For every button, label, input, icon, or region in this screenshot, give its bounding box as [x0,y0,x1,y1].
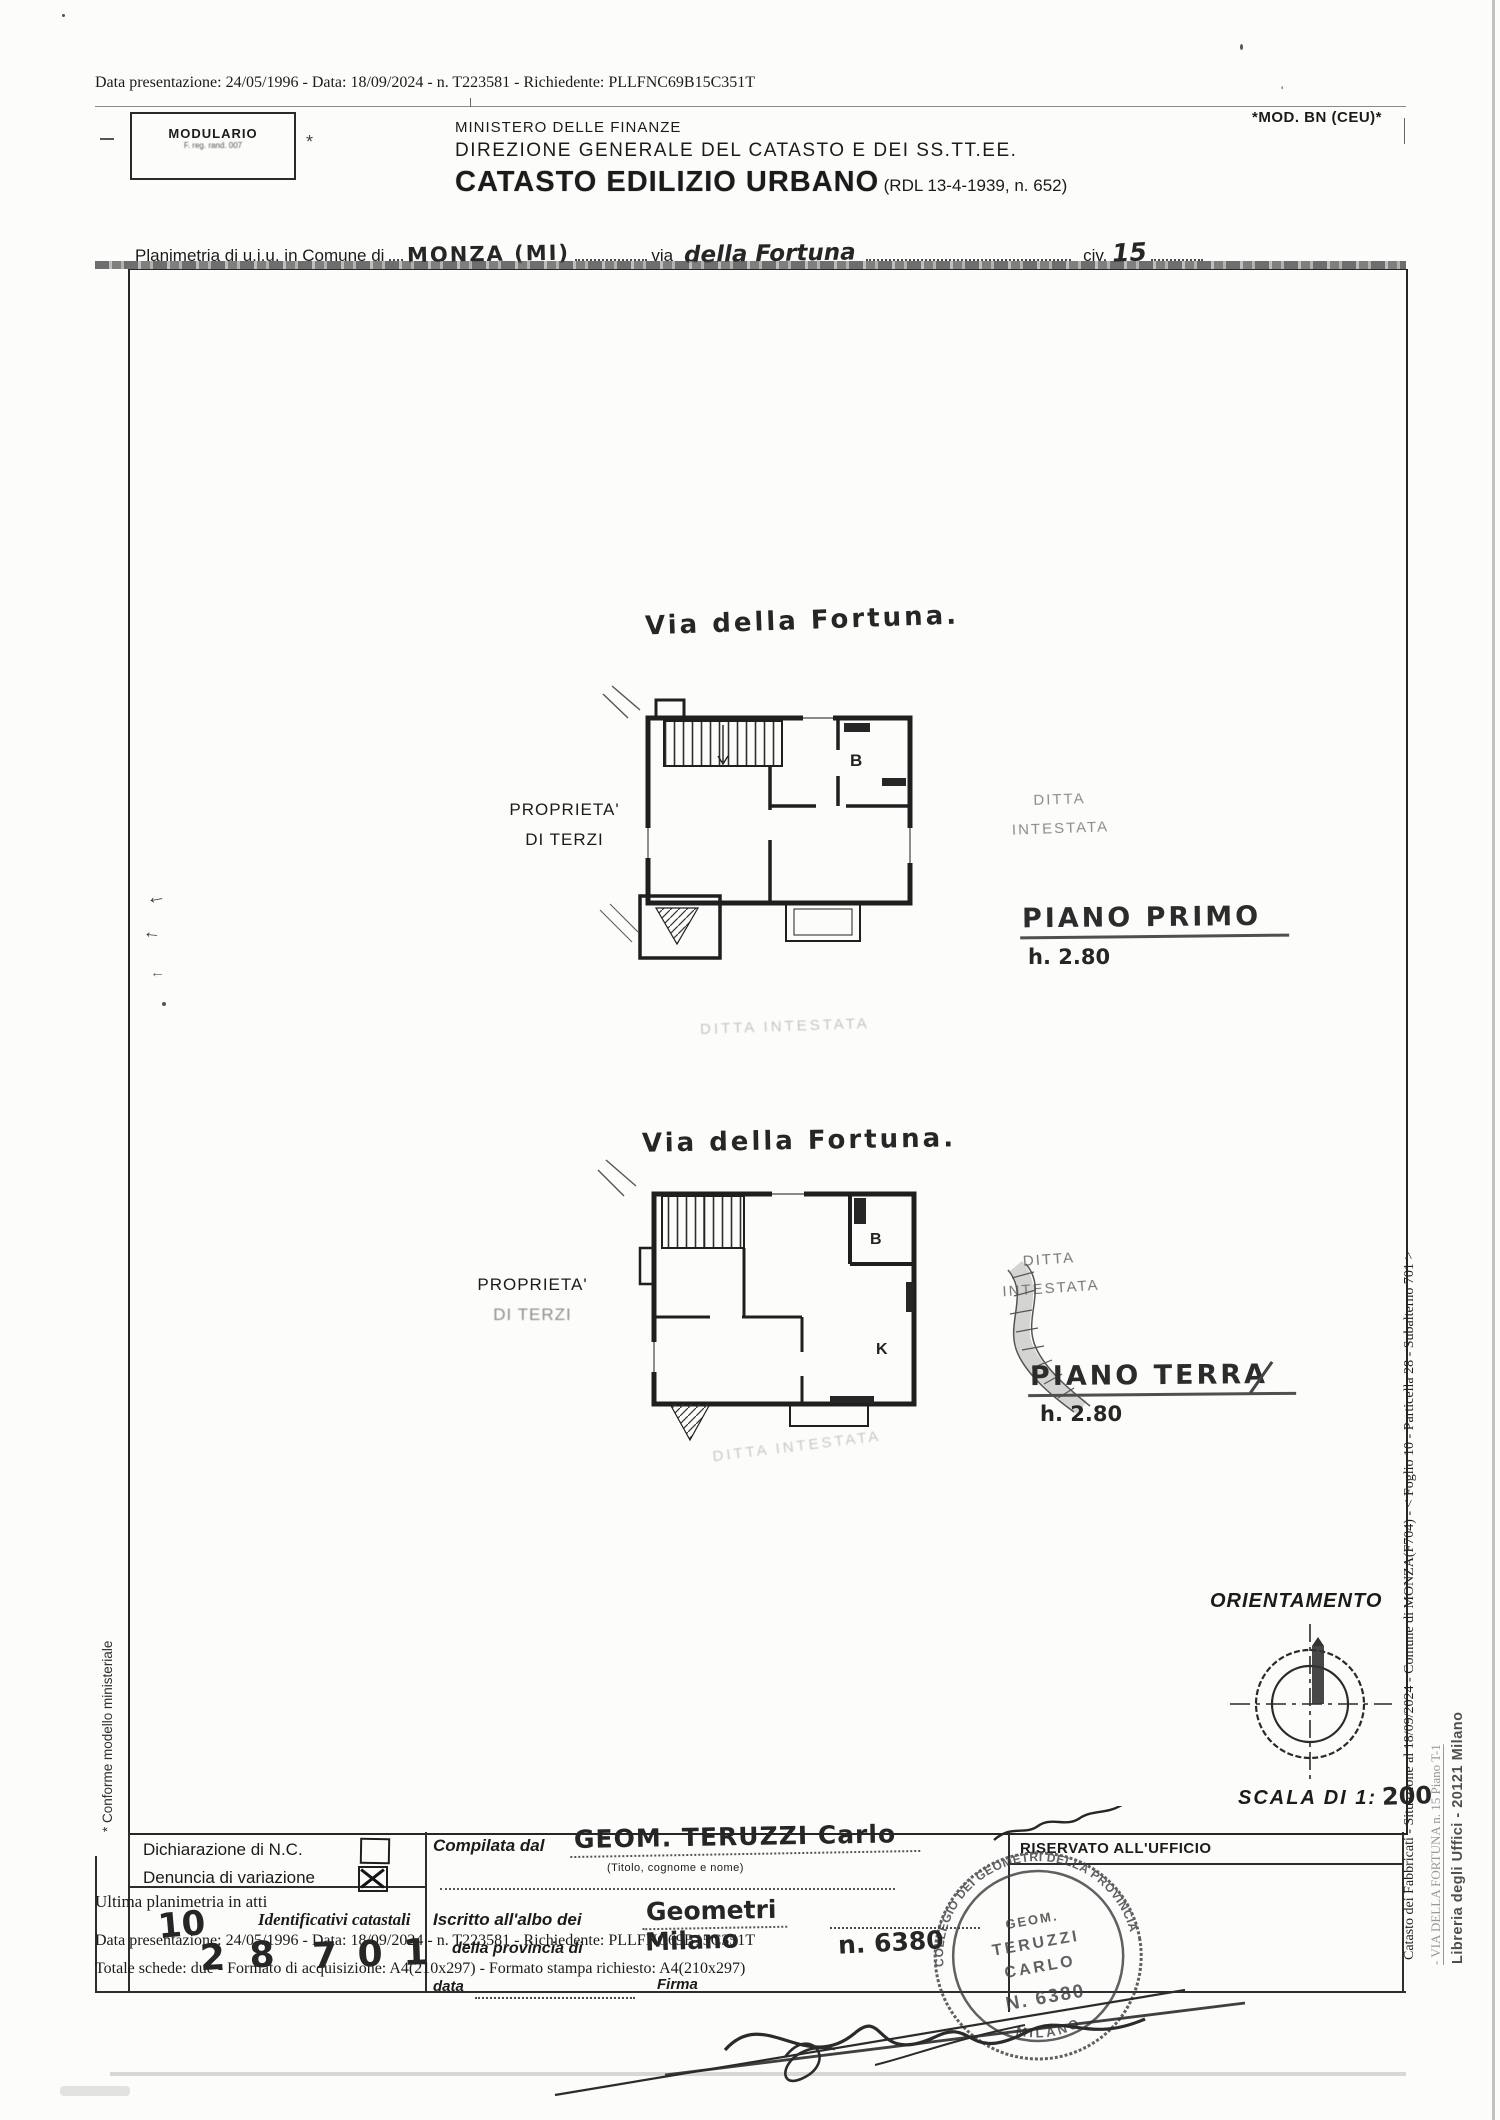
scale-label: SCALA DI 1: [1238,1787,1377,1809]
dot-leader [575,244,647,261]
room-label-bath: B [850,751,862,770]
scanned-cadastral-document: Data presentazione: 24/05/1996 - Data: 1… [0,0,1500,2120]
asterisk-mark: * [306,132,313,153]
margin-arrow-icon: ← [142,921,162,944]
compass-icon [1226,1620,1396,1788]
modulario-title: MODULARIO [132,126,294,141]
document-title: CATASTO EDILIZIO URBANO [455,166,879,198]
header-rule [95,106,1406,107]
scan-speck [1240,44,1243,50]
floor-plan-first: B [598,678,933,993]
room-label-kitchen: K [876,1341,888,1358]
tenant-label-first: DITTA INTESTATA [994,784,1126,846]
data-label: data [433,1978,464,1995]
tenant-line1: DITTA [994,784,1125,817]
pen-scribble [988,1806,1158,1851]
handwritten-particella: 2 8 [199,1934,282,1979]
dot-leader [866,244,1071,261]
signature-scribble [545,1945,1305,2110]
declaration-nc-label: Dichiarazione di N.C. [143,1840,303,1860]
owner-left-label-ground: PROPRIETA' DI TERZI [450,1270,615,1330]
form-right-border [1402,1832,1404,1991]
left-margin-note: * Conforme modello ministeriale [100,1484,120,1832]
floor-name-first: PIANO PRIMO [1020,901,1290,940]
handwritten-subalterno: 7 0 1 [311,1932,433,1977]
entrance-hatch [656,908,698,944]
floor-height-ground: h. 2.80 [1040,1402,1122,1426]
floor-name-ground-wrap: PIANO TERRA [1028,1359,1296,1397]
floor-name-first-wrap: PIANO PRIMO [1020,901,1290,940]
north-needle [1312,1646,1324,1704]
compilata-label: Compilata dal [433,1836,544,1856]
margin-arrow-icon: ← [144,884,168,910]
right-margin-libreria-line: Libreria degli Uffici - 20121 Milano [1450,1552,1472,1964]
orientation-label: ORIENTAMENTO [1210,1590,1382,1613]
right-margin-address-line: - VIA DELLA FORTUNA n. 15 Piano T-1 [1428,1590,1448,1965]
identificativi-label: Identificativi catastali [258,1910,411,1930]
scan-presentation-line: Data presentazione: 24/05/1996 - Data: 1… [95,74,755,92]
scan-speck: ' [1281,84,1283,98]
scan-speck [162,1002,166,1006]
owner-left-label-first: PROPRIETA' DI TERZI [482,795,647,855]
stamp-center-1: GEOM. [1004,1908,1059,1932]
scan-speck [62,14,65,17]
staircase-hatch [662,1196,744,1248]
declaration-variation-label: Denuncia di variazione [143,1868,315,1888]
compilata-handwritten: GEOM. TERUZZI Carlo [570,1819,921,1858]
titolo-note: (Titolo, cognome e nome) [607,1862,744,1874]
owner-left-line2: DI TERZI [482,825,647,855]
document-title-row: CATASTO EDILIZIO URBANO (RDL 13-4-1939, … [455,166,1067,199]
tenant-line2: INTESTATA [995,812,1126,845]
floor-name-ground: PIANO TERRA [1028,1359,1296,1397]
iscritto-label: Iscritto all'albo dei [433,1910,582,1930]
header-tick [470,98,471,107]
dotted-rule [440,1888,895,1890]
owner-left-line1: PROPRIETA' [450,1270,615,1300]
owner-left-line1: PROPRIETA' [482,795,647,825]
scan-edge-line [1492,0,1495,2120]
header-tick [1404,118,1405,144]
checkbox-nc [360,1838,390,1865]
entrance-hatch [670,1404,710,1440]
document-title-ref: (RDL 13-4-1939, n. 652) [884,176,1068,195]
modulario-box: MODULARIO F. reg. rand. 007 [130,112,296,180]
frame-top-band [95,261,1406,269]
ground-floor-walls [598,1160,914,1440]
owner-left-line2: DI TERZI [450,1300,615,1330]
floor-plan-ground: B K [592,1152,942,1452]
direction-line: DIREZIONE GENERALE DEL CATASTO E DEI SS.… [455,140,1017,162]
margin-mark: ← [150,964,165,981]
floor-height-first: h. 2.80 [1028,945,1110,969]
mod-code: *MOD. BN (CEU)* [1252,109,1382,126]
ministry-line: MINISTERO DELLE FINANZE [455,119,681,136]
checkbox-variation-checked [358,1866,388,1892]
modulario-subtitle: F. reg. rand. 007 [132,141,294,150]
dot-leader [1151,244,1203,261]
dash-mark [100,138,114,140]
dot-leader [389,244,403,261]
right-margin-catasto-line: Catasto dei Fabbricati - Situazione al 1… [1402,890,1424,1960]
scan-smudge [60,2086,130,2096]
room-label-bath: B [870,1231,882,1248]
